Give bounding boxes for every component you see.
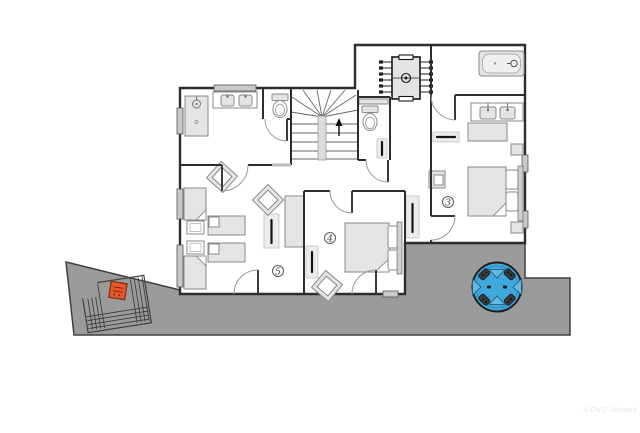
- radiator-icon: [433, 132, 459, 142]
- svg-text:4: 4: [326, 234, 333, 244]
- room-label-3: 3: [443, 197, 454, 209]
- vanity-icon: [471, 103, 523, 121]
- room-label-4: 4: [325, 233, 336, 245]
- barbecue-icon: [109, 281, 127, 299]
- window: [177, 245, 183, 287]
- ensuite-bathroom: [479, 51, 524, 76]
- single-bed: [184, 256, 206, 289]
- dresser: [468, 123, 507, 141]
- floor-plan-drawing: 3 4: [0, 0, 640, 433]
- nightstand: [187, 221, 204, 234]
- watermark: © OVO Network: [583, 407, 637, 414]
- radiator-icon: [264, 214, 279, 248]
- svg-text:3: 3: [445, 198, 451, 208]
- svg-text:5: 5: [275, 267, 281, 277]
- radiator-icon: [377, 139, 387, 158]
- shower-icon: [185, 96, 208, 136]
- bathtub-icon: [479, 51, 524, 76]
- shelf: [359, 99, 388, 104]
- window: [177, 108, 183, 134]
- single-bed: [184, 188, 206, 220]
- window: [214, 85, 256, 91]
- room-label-5: 5: [273, 266, 284, 278]
- single-bed: [208, 243, 245, 262]
- single-bed: [208, 216, 245, 235]
- floor-plan-page: 3 4: [0, 0, 640, 433]
- hot-tub-icon: [473, 263, 522, 312]
- radiator-icon: [306, 246, 318, 278]
- nightstand: [187, 241, 204, 254]
- radiator-icon: [406, 196, 419, 238]
- nightstand: [511, 144, 523, 155]
- nightstand: [511, 222, 523, 233]
- wardrobe: [285, 196, 304, 247]
- double-vanity-icon: [213, 92, 257, 108]
- window: [177, 189, 183, 219]
- window: [383, 291, 398, 297]
- toilet-icon: [272, 94, 288, 118]
- wc-toilet-icon: [362, 106, 378, 131]
- double-bed: [345, 222, 402, 274]
